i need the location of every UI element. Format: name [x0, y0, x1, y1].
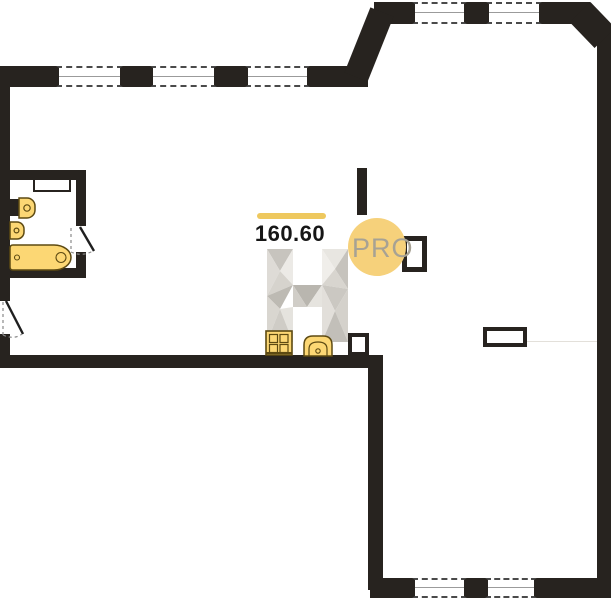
bathtub-icon — [10, 245, 71, 270]
door-swing-icon — [71, 227, 94, 254]
area-label: 160.60 — [248, 221, 332, 245]
stove-icon — [266, 331, 292, 355]
door-leaf — [6, 301, 23, 334]
area-underline — [257, 213, 326, 219]
door-arc-dashed — [3, 334, 22, 337]
kitchen-sink-icon — [304, 336, 332, 356]
door-arc-dashed — [71, 251, 93, 254]
wall-diagonal-junction — [356, 12, 382, 77]
door-leaf — [80, 227, 94, 251]
pro-badge-label[interactable]: PRO — [352, 233, 416, 263]
washbasin-icon — [19, 198, 35, 218]
door-swing-icon — [3, 301, 23, 337]
toilet-icon — [10, 222, 24, 239]
plan-details — [0, 0, 611, 600]
floor-plan: 160.60 PRO — [0, 0, 611, 600]
wall-chamfer-corner — [580, 12, 605, 38]
